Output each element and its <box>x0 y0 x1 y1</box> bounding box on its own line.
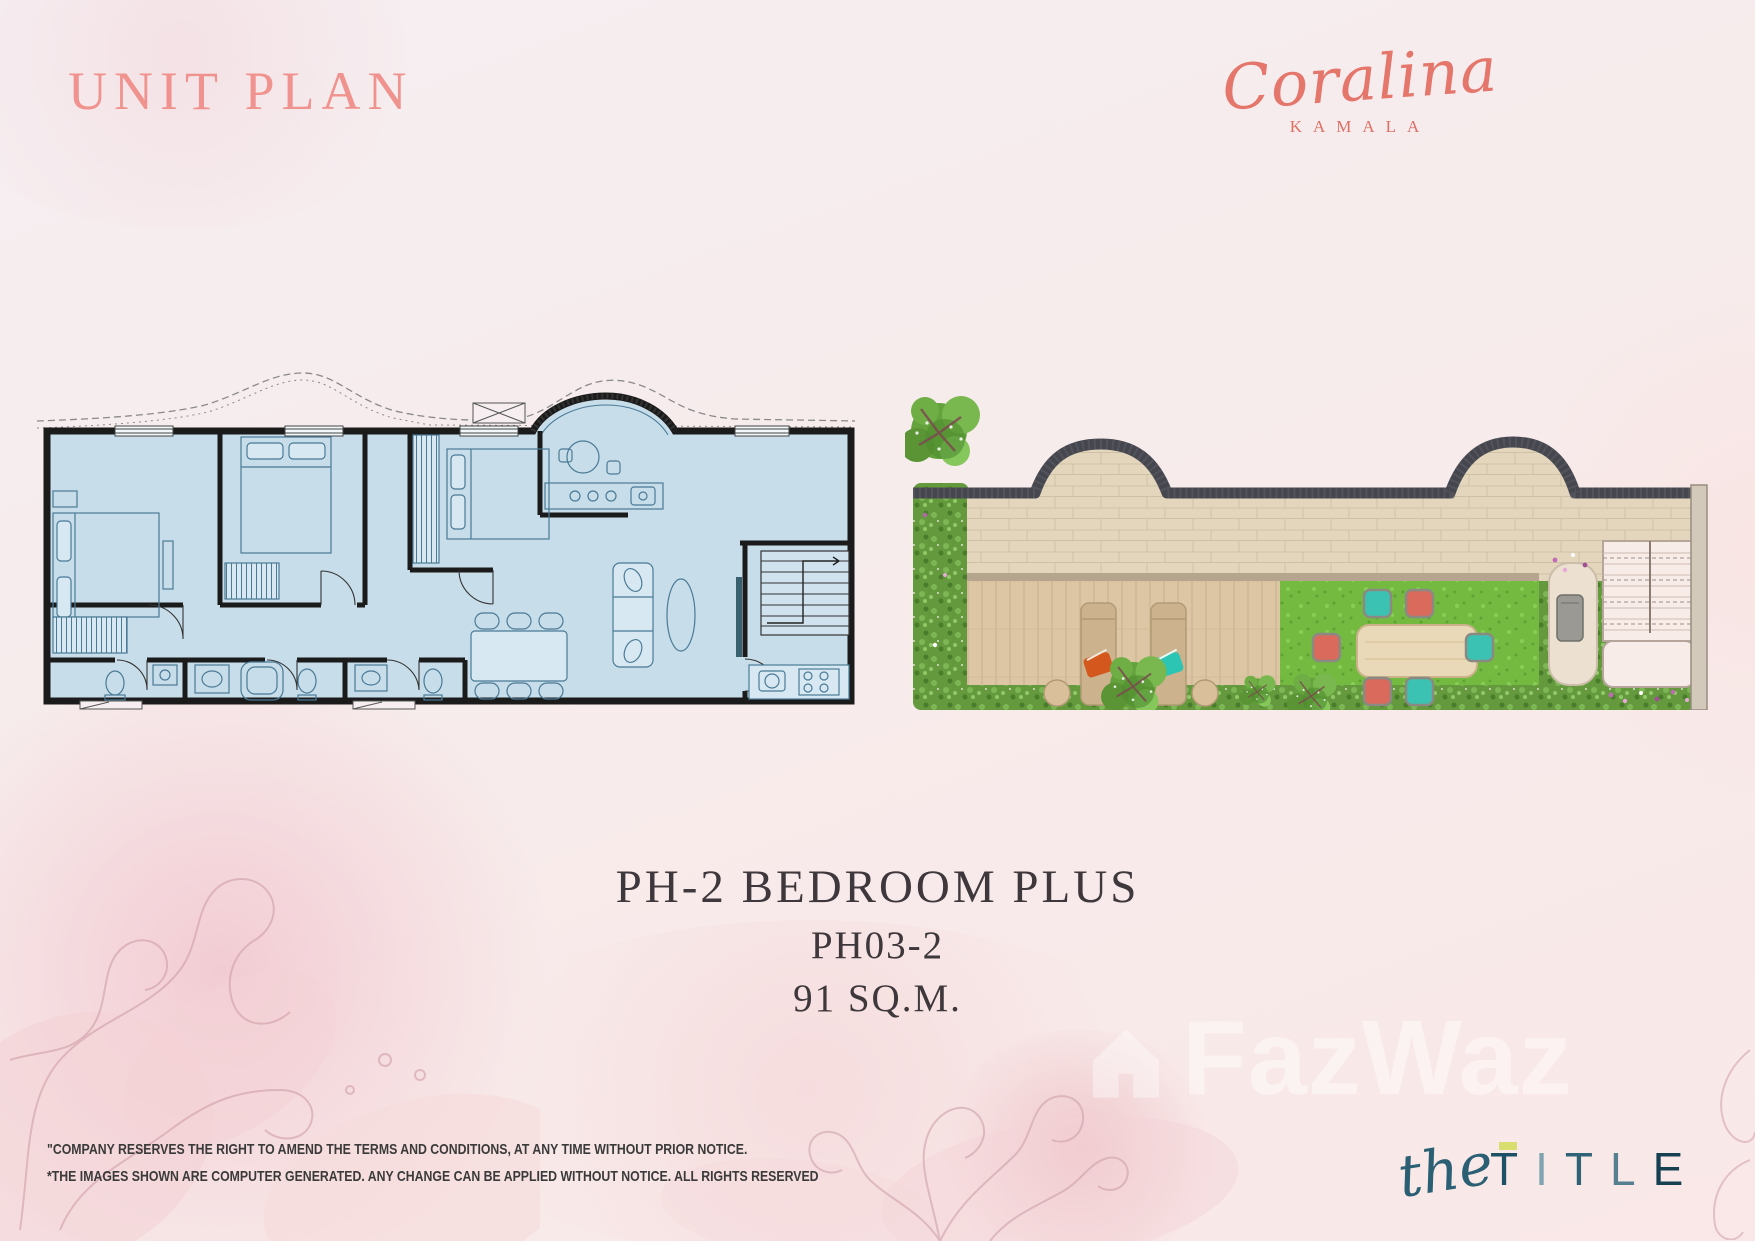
sofa <box>613 563 653 667</box>
logo-accent <box>1499 1142 1517 1150</box>
disclaimer-line: "COMPANY RESERVES THE RIGHT TO AMEND THE… <box>47 1136 819 1163</box>
unit-info: PH-2 BEDROOM PLUS PH03-2 91 SQ.M. <box>0 860 1755 1021</box>
brand-logo: Coralina KAMALA <box>1180 42 1540 137</box>
brand-name: Coralina <box>1220 32 1500 124</box>
dresser <box>53 617 127 653</box>
ac-unit <box>1557 595 1583 641</box>
garden-strip <box>913 483 969 695</box>
side-wall <box>1691 485 1707 710</box>
roof-terrace-plan <box>905 365 1710 710</box>
side-table <box>1044 680 1070 706</box>
developer-prefix: the <box>1393 1129 1497 1211</box>
tree-icon <box>1101 656 1167 710</box>
tv-panel <box>736 577 742 657</box>
stairs <box>1603 541 1695 687</box>
developer-logo: the TITLE <box>1398 1118 1738 1228</box>
outdoor-table <box>1357 625 1477 677</box>
paving-edge <box>967 573 1539 581</box>
developer-letter: L <box>1610 1142 1653 1196</box>
page-title: UNIT PLAN <box>68 60 414 122</box>
sun-lounger <box>1151 603 1186 705</box>
stairs <box>761 551 849 635</box>
disclaimer-line: *THE IMAGES SHOWN ARE COMPUTER GENERATED… <box>47 1163 819 1190</box>
unit-floor-plan <box>35 365 858 710</box>
developer-letter: T <box>1565 1142 1610 1196</box>
developer-letter: T <box>1490 1142 1535 1196</box>
tree-icon <box>1239 675 1275 707</box>
developer-letter: I <box>1535 1142 1565 1196</box>
brochure-page: UNIT PLAN Coralina KAMALA <box>0 0 1755 1241</box>
roof-outline <box>37 373 855 428</box>
disclaimer: "COMPANY RESERVES THE RIGHT TO AMEND THE… <box>47 1136 819 1190</box>
kitchen-counter <box>749 665 849 699</box>
wardrobe <box>413 435 439 563</box>
window-box <box>473 403 525 423</box>
unit-area: 91 SQ.M. <box>0 976 1755 1021</box>
developer-name: TITLE <box>1490 1142 1700 1196</box>
watercolor-blob <box>930 1030 1230 1241</box>
side-table <box>1192 680 1218 706</box>
developer-letter: E <box>1653 1142 1701 1196</box>
unit-code: PH03-2 <box>0 923 1755 968</box>
unit-shell <box>47 396 851 701</box>
tree-icon <box>905 396 980 466</box>
house-icon <box>1080 1013 1172 1105</box>
closet <box>225 563 279 599</box>
unit-name: PH-2 BEDROOM PLUS <box>0 860 1755 914</box>
